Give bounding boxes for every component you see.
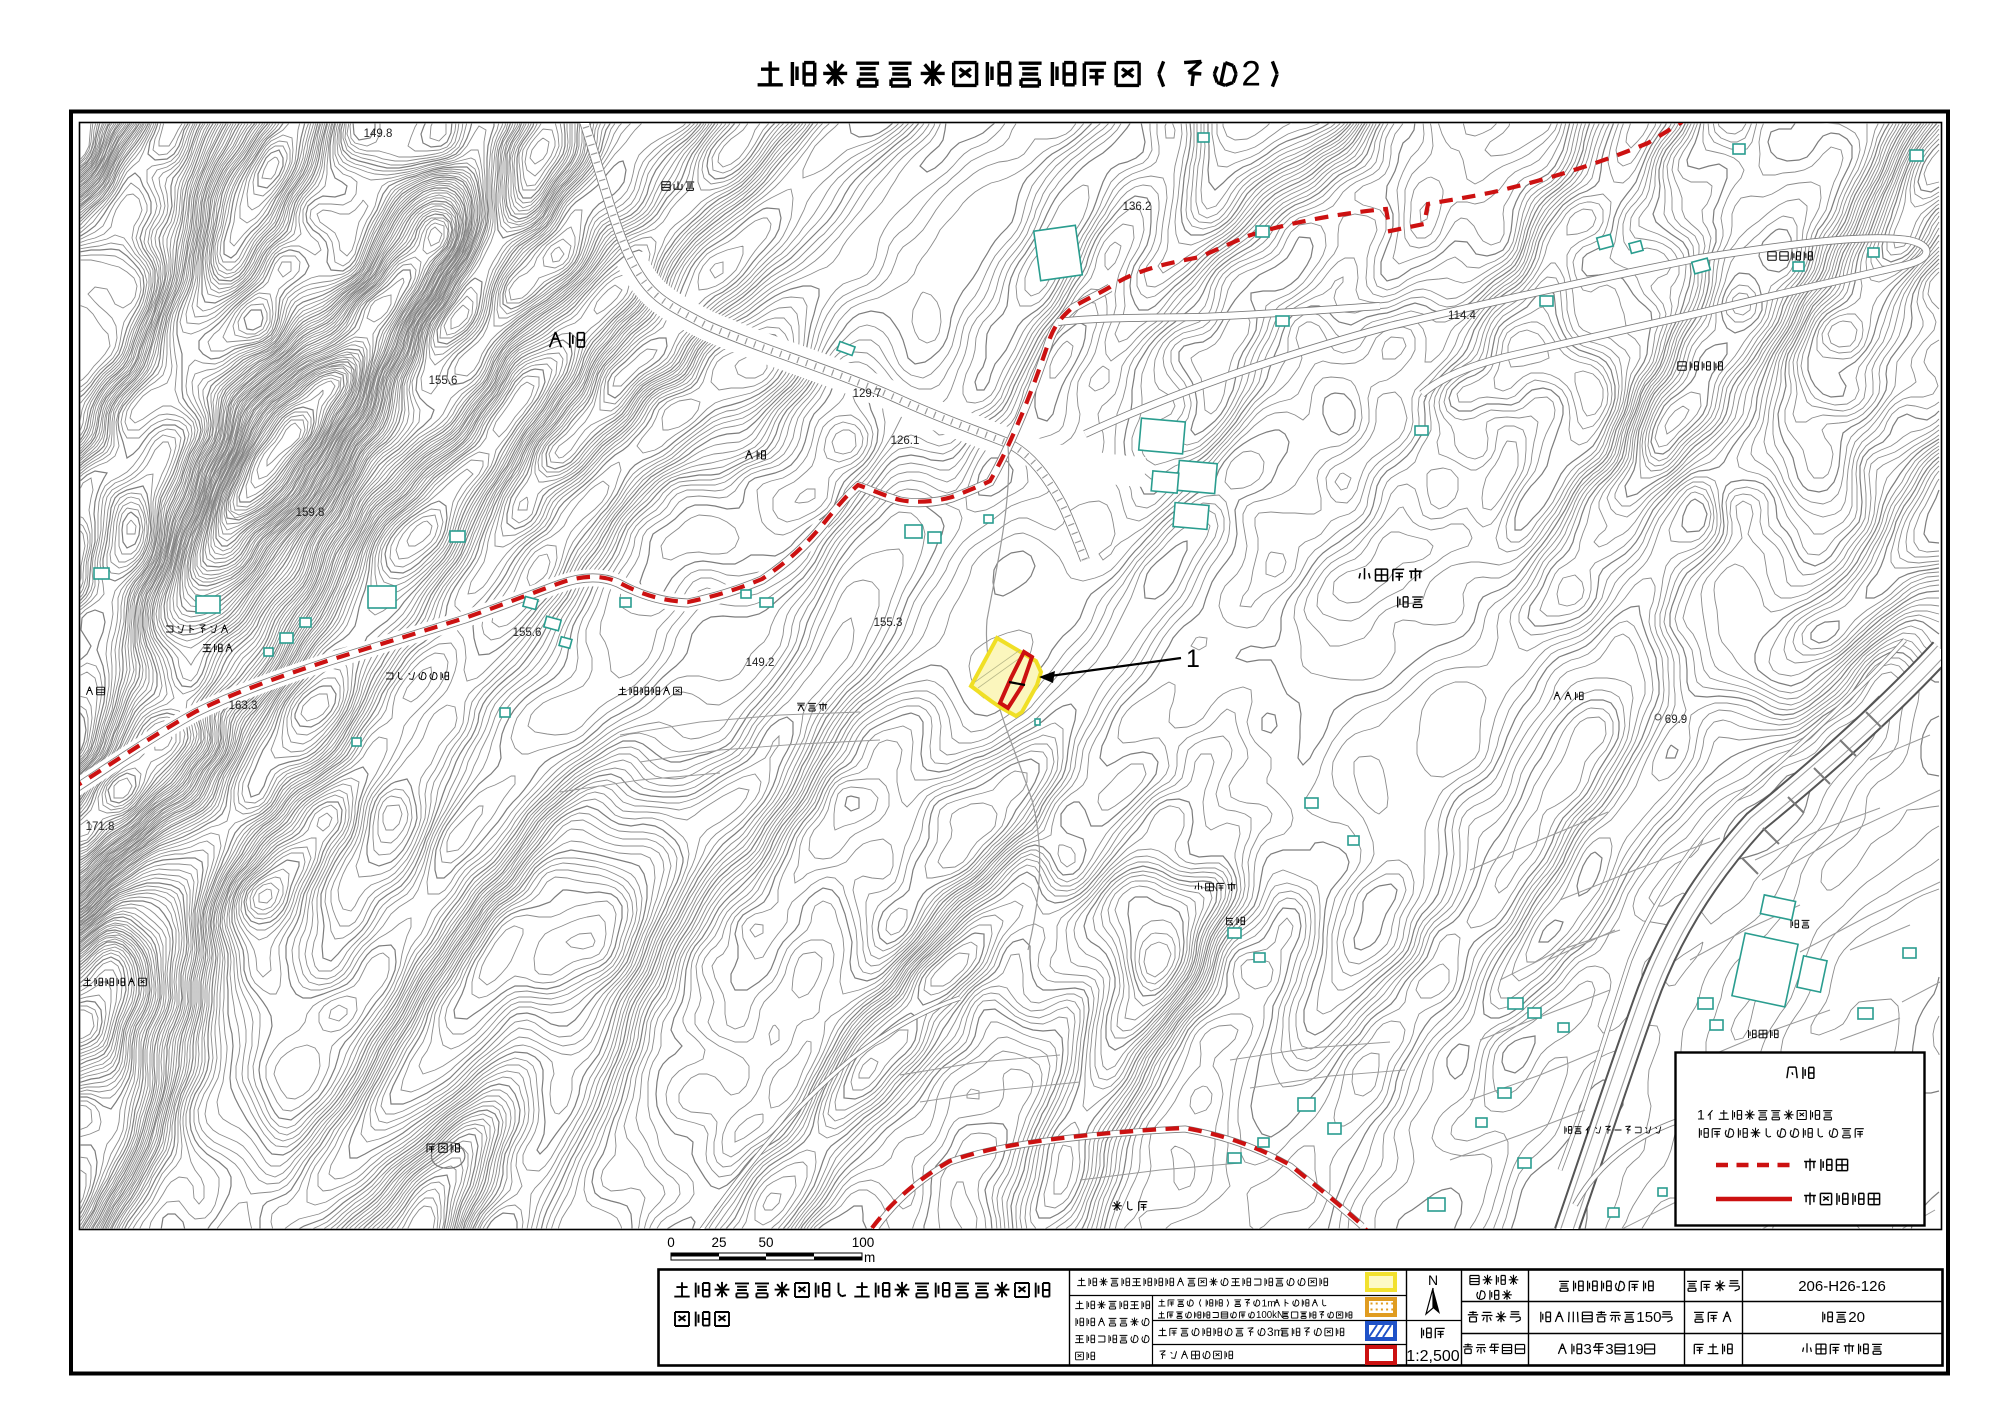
svg-text:155.3: 155.3 [874,617,903,629]
svg-text:50: 50 [758,1235,773,1250]
svg-text:3: 3 [1605,1341,1613,1358]
svg-text:150: 150 [1636,1309,1661,1326]
svg-text:3m: 3m [1267,1325,1284,1339]
svg-text:149.8: 149.8 [364,128,393,140]
svg-text:1:2,500: 1:2,500 [1406,1348,1459,1365]
svg-text:1: 1 [1186,645,1200,673]
svg-text:69.9: 69.9 [1665,714,1687,726]
svg-text:149.2: 149.2 [746,657,775,669]
svg-text:3: 3 [1583,1341,1591,1358]
svg-text:171.8: 171.8 [86,821,115,833]
svg-text:N: N [1428,1272,1438,1288]
svg-text:126.1: 126.1 [891,435,920,447]
svg-text:2: 2 [1241,55,1261,94]
svg-text:136.2: 136.2 [1123,201,1152,213]
svg-text:m: m [864,1250,875,1265]
svg-text:100kN: 100kN [1256,1310,1284,1321]
svg-text:1m: 1m [1262,1298,1276,1309]
svg-text:129.7: 129.7 [853,388,882,400]
svg-text:0: 0 [667,1235,675,1250]
svg-text:25: 25 [711,1235,726,1250]
svg-text:155.6: 155.6 [513,627,542,639]
svg-text:155.6: 155.6 [429,375,458,387]
svg-text:163.3: 163.3 [229,700,258,712]
svg-text:114.4: 114.4 [1448,310,1477,322]
svg-text:100: 100 [852,1235,875,1250]
svg-text:20: 20 [1848,1309,1865,1326]
svg-text:206-H26-126: 206-H26-126 [1798,1278,1886,1295]
svg-text:19: 19 [1627,1341,1644,1358]
svg-text:1: 1 [1697,1107,1705,1123]
svg-text:159.8: 159.8 [296,507,325,519]
